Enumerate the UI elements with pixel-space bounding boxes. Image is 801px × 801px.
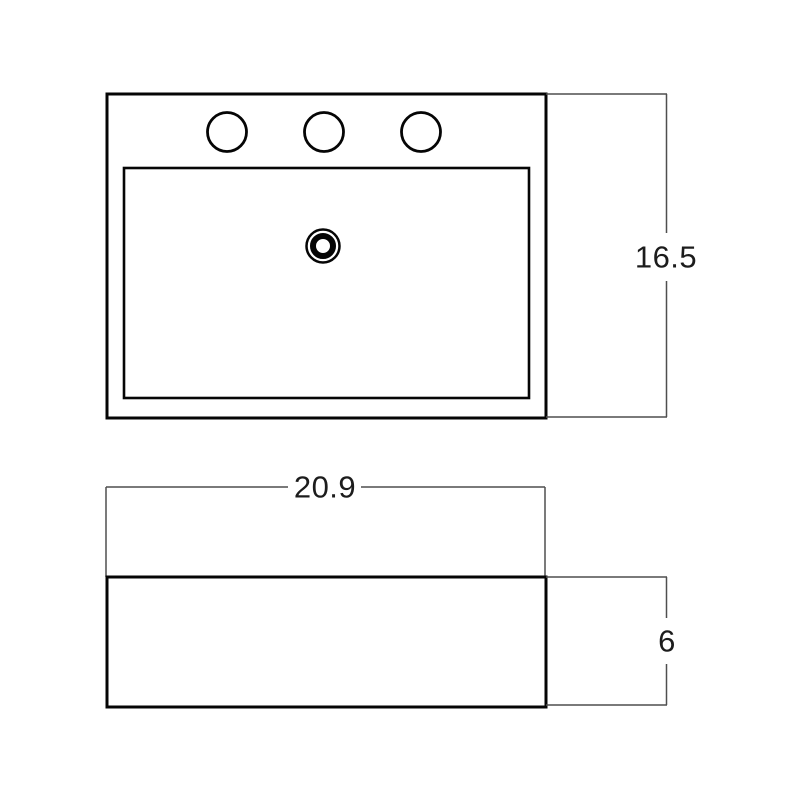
depth-dimension [546,577,667,705]
sink-drawing-svg: 16.5 20.9 6 [0,0,801,801]
technical-drawing-canvas: 16.5 20.9 6 [0,0,801,801]
height-dimension-label: 16.5 [635,240,697,275]
top-view [107,94,546,418]
drain [307,230,340,263]
depth-dimension-label: 6 [658,624,676,659]
width-dimension-label: 20.9 [294,470,356,505]
faucet-hole-center [305,113,344,152]
faucet-hole-left [208,113,247,152]
faucet-hole-right [402,113,441,152]
front-view [107,577,546,707]
front-view-outline [107,577,546,707]
basin-outline [124,168,529,398]
drain-inner-ring [313,236,333,256]
